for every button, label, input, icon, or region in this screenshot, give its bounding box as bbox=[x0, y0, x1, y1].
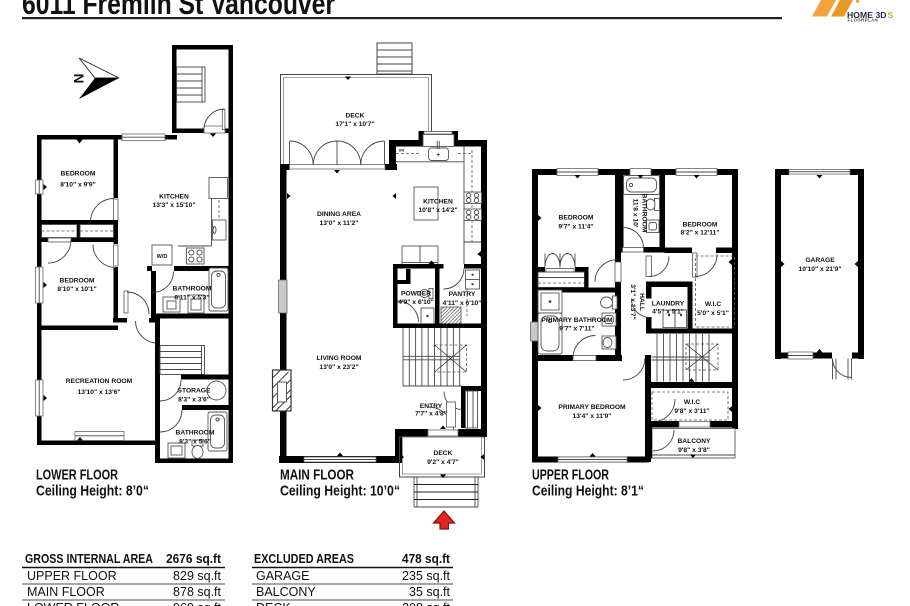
svg-text:8'10" x 10'1": 8'10" x 10'1" bbox=[57, 286, 96, 293]
svg-text:KITCHEN: KITCHEN bbox=[159, 194, 189, 201]
svg-text:13'4" x 11'9": 13'4" x 11'9" bbox=[573, 413, 612, 420]
svg-text:W/D: W/D bbox=[157, 254, 168, 260]
svg-text:BALCONY: BALCONY bbox=[677, 438, 711, 445]
svg-text:EXCLUDED AREAS: EXCLUDED AREAS bbox=[254, 551, 354, 566]
svg-text:KITCHEN: KITCHEN bbox=[423, 199, 453, 206]
svg-text:9'8" x 3'11": 9'8" x 3'11" bbox=[674, 408, 709, 415]
svg-text:BATHROOM: BATHROOM bbox=[173, 286, 212, 293]
svg-text:BEDROOM: BEDROOM bbox=[683, 222, 718, 229]
svg-text:11'8 x 10': 11'8 x 10' bbox=[632, 199, 639, 228]
svg-text:DINING AREA: DINING AREA bbox=[317, 211, 361, 218]
svg-text:17'1" x 10'7": 17'1" x 10'7" bbox=[335, 121, 374, 128]
svg-text:S: S bbox=[888, 10, 894, 20]
svg-text:8'10" x 9'9": 8'10" x 9'9" bbox=[60, 182, 96, 189]
svg-text:MAIN FLOOR: MAIN FLOOR bbox=[280, 467, 354, 484]
svg-text:DW: DW bbox=[399, 149, 404, 153]
svg-text:LOWER FLOOR: LOWER FLOOR bbox=[36, 467, 118, 484]
svg-text:RECREATION ROOM: RECREATION ROOM bbox=[66, 378, 133, 385]
svg-text:235 sq.ft: 235 sq.ft bbox=[402, 569, 450, 583]
svg-text:13'0" x 23'2": 13'0" x 23'2" bbox=[319, 364, 358, 371]
svg-text:829 sq.ft: 829 sq.ft bbox=[173, 569, 221, 583]
svg-text:POWDER: POWDER bbox=[401, 291, 431, 298]
svg-text:2676 sq.ft: 2676 sq.ft bbox=[166, 551, 222, 566]
svg-text:DECK: DECK bbox=[434, 450, 453, 457]
svg-text:3'1" x 13'7": 3'1" x 13'7" bbox=[629, 284, 636, 320]
svg-text:4'11" x 6'10": 4'11" x 6'10" bbox=[443, 300, 482, 307]
svg-text:FLOORPLAN: FLOORPLAN bbox=[848, 18, 879, 23]
svg-text:9'7" x 11'4": 9'7" x 11'4" bbox=[558, 224, 593, 231]
svg-text:13'0" x 11'2": 13'0" x 11'2" bbox=[320, 220, 359, 227]
svg-text:Ceiling Height: 8’0“: Ceiling Height: 8’0“ bbox=[36, 483, 149, 500]
svg-text:10'10" x 21'9": 10'10" x 21'9" bbox=[799, 266, 842, 273]
svg-text:GARAGE: GARAGE bbox=[256, 569, 310, 583]
svg-text:208 sq.ft: 208 sq.ft bbox=[402, 601, 450, 606]
svg-text:LAUNDRY: LAUNDRY bbox=[652, 301, 685, 308]
svg-text:ENTRY: ENTRY bbox=[420, 403, 443, 410]
svg-text:878 sq.ft: 878 sq.ft bbox=[173, 585, 221, 599]
svg-text:BALCONY: BALCONY bbox=[256, 585, 316, 599]
svg-text:Ceiling Height: 8’1“: Ceiling Height: 8’1“ bbox=[532, 483, 644, 500]
svg-text:5'0" x 5'1": 5'0" x 5'1" bbox=[697, 310, 729, 317]
svg-text:9'7" x 7'11": 9'7" x 7'11" bbox=[559, 326, 594, 333]
svg-text:4'5" x 5'1": 4'5" x 5'1" bbox=[652, 309, 684, 316]
svg-text:GARAGE: GARAGE bbox=[805, 257, 835, 264]
svg-text:9'8" x 3'8": 9'8" x 3'8" bbox=[678, 447, 710, 454]
svg-text:LIVING ROOM: LIVING ROOM bbox=[317, 355, 362, 362]
svg-text:GROSS INTERNAL AREA: GROSS INTERNAL AREA bbox=[25, 551, 153, 566]
svg-text:UPPER FLOOR: UPPER FLOOR bbox=[532, 467, 609, 484]
svg-text:BATHROOM: BATHROOM bbox=[176, 430, 215, 437]
svg-text:MAIN FLOOR: MAIN FLOOR bbox=[27, 585, 105, 599]
svg-text:W.I.C: W.I.C bbox=[684, 399, 701, 406]
svg-text:13'10" x 13'6": 13'10" x 13'6" bbox=[78, 389, 121, 396]
svg-text:478 sq.ft: 478 sq.ft bbox=[402, 551, 451, 566]
svg-text:4'9" x 6'10": 4'9" x 6'10" bbox=[398, 299, 434, 306]
svg-text:13'3" x 15'10": 13'3" x 15'10" bbox=[153, 202, 196, 209]
svg-text:HALL: HALL bbox=[638, 293, 645, 311]
svg-text:PANTRY: PANTRY bbox=[449, 291, 476, 298]
svg-text:969 sq.ft: 969 sq.ft bbox=[173, 601, 221, 606]
svg-text:N: N bbox=[71, 74, 86, 84]
svg-text:Ceiling Height: 10’0“: Ceiling Height: 10’0“ bbox=[280, 483, 400, 500]
svg-text:9'2" x 4'7": 9'2" x 4'7" bbox=[427, 459, 459, 466]
svg-text:8'3" x 5'6": 8'3" x 5'6" bbox=[179, 439, 211, 446]
svg-text:BEDROOM: BEDROOM bbox=[61, 171, 96, 178]
svg-text:BEDROOM: BEDROOM bbox=[559, 215, 594, 222]
svg-text:10'8" x 14'2": 10'8" x 14'2" bbox=[418, 207, 457, 214]
svg-text:BATHROOM: BATHROOM bbox=[641, 194, 648, 233]
svg-text:STORAGE: STORAGE bbox=[178, 388, 211, 395]
svg-text:LOWER FLOOR: LOWER FLOOR bbox=[27, 601, 119, 606]
svg-text:8'3" x 3'6": 8'3" x 3'6" bbox=[178, 397, 210, 404]
svg-text:DECK: DECK bbox=[346, 113, 365, 120]
svg-text:PRIMARY BEDROOM: PRIMARY BEDROOM bbox=[558, 404, 626, 411]
svg-text:35 sq.ft: 35 sq.ft bbox=[409, 585, 451, 599]
svg-text:DECK: DECK bbox=[256, 601, 291, 606]
svg-text:W.I.C: W.I.C bbox=[705, 301, 722, 308]
svg-text:UPPER FLOOR: UPPER FLOOR bbox=[27, 569, 117, 583]
svg-text:8'2" x 12'11": 8'2" x 12'11" bbox=[681, 230, 720, 237]
svg-text:BEDROOM: BEDROOM bbox=[60, 278, 95, 285]
svg-text:8'11" x 5'3": 8'11" x 5'3" bbox=[174, 295, 209, 302]
svg-text:PRIMARY BATHROOM: PRIMARY BATHROOM bbox=[541, 317, 613, 324]
